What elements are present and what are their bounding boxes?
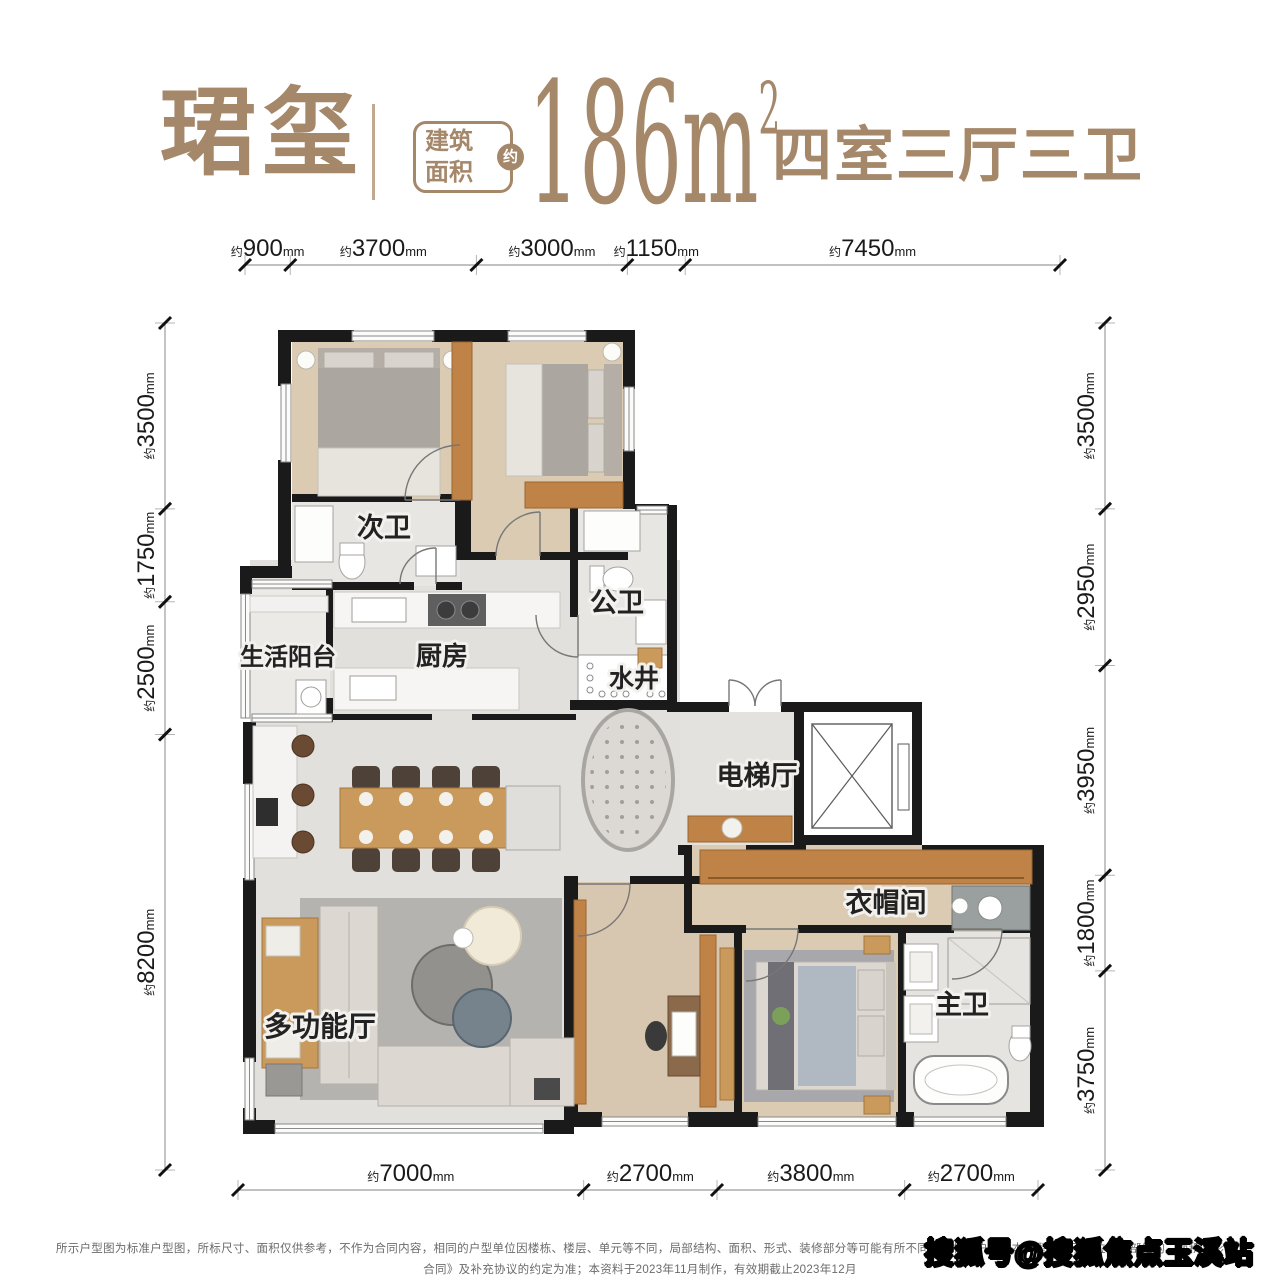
wall-segment (1006, 1112, 1044, 1127)
room-label-multifunction-hall: 多功能厅 (264, 1011, 376, 1042)
dimension-label: 约2700mm (928, 1160, 1015, 1187)
wall-segment (436, 582, 462, 590)
wall-segment (564, 876, 578, 884)
watermark: 搜狐号@搜狐焦点玉溪站 (925, 1230, 1254, 1272)
room-label-master-bath: 主卫 (935, 990, 989, 1020)
room-label-elevator-hall: 电梯厅 (717, 761, 798, 791)
dimension-chain-left: 约3500mm约1750mm约2500mm约8200mm (133, 317, 175, 1176)
wall-segment (794, 835, 922, 845)
dimension-label: 约3950mm (1073, 727, 1100, 814)
dimension-label: 约1150mm (614, 235, 699, 262)
wall-segment (540, 552, 628, 560)
wall-segment (544, 1120, 574, 1134)
wall-segment (243, 878, 256, 1062)
sofa-set (262, 898, 574, 1106)
room-label-water-well: 水井 (609, 665, 659, 693)
wall-segment (455, 498, 471, 560)
wall-segment (902, 925, 954, 933)
console-table (688, 816, 792, 842)
wall-segment (278, 342, 291, 386)
wall-segment (896, 1112, 914, 1127)
dimension-label: 约1750mm (133, 512, 160, 599)
wall-segment (330, 714, 432, 720)
dimension-chain-top: 约900mm约3700mm约3000mm约1150mm约7450mm (231, 235, 1066, 275)
room-label-secondary-bath: 次卫 (357, 513, 411, 543)
dimension-label: 约1800mm (1073, 880, 1100, 967)
wall-segment (623, 342, 635, 389)
wall-segment (678, 845, 692, 855)
wall-segment (667, 505, 677, 705)
wall-segment (623, 449, 635, 509)
dimension-chain-right: 约3500mm约2950mm约3950mm约1800mm约3750mm (1073, 317, 1115, 1176)
dimension-label: 约3000mm (508, 235, 595, 262)
dimension-label: 约7450mm (829, 235, 916, 262)
dimension-label: 约3750mm (1073, 1027, 1100, 1114)
room-label-kitchen: 厨房 (416, 641, 468, 671)
wall-segment (912, 712, 922, 845)
dimension-label: 约900mm (231, 235, 305, 262)
wall-segment (278, 460, 291, 572)
dimension-label: 约7000mm (367, 1160, 454, 1187)
wall-segment (240, 566, 252, 594)
wall-segment (1030, 845, 1044, 1127)
wall-segment (667, 702, 729, 712)
wall-segment (243, 1120, 275, 1134)
room-label-service-balcony: 生活阳台 (240, 643, 336, 671)
wall-segment (734, 932, 742, 1118)
wall-segment (584, 330, 635, 342)
elevator-shaft (804, 712, 912, 835)
dimension-chain-bottom: 约7000mm约2700mm约3800mm约2700mm (232, 1160, 1044, 1200)
wall-segment (466, 552, 496, 560)
dimension-label: 约3800mm (767, 1160, 854, 1187)
wall-segment (278, 330, 354, 342)
master-bed (744, 936, 896, 1114)
wall-segment (432, 330, 510, 342)
dimension-label: 约3500mm (133, 372, 160, 459)
bed-1 (297, 348, 461, 496)
wall-segment (688, 1112, 758, 1127)
dimension-label: 约3700mm (340, 235, 427, 262)
wall-segment (798, 925, 902, 933)
wall-segment (570, 700, 674, 710)
wall-segment (472, 714, 576, 720)
wall-segment (684, 925, 746, 933)
floor-plan: 次卫 公卫 水井 生活阳台 厨房 电梯厅 衣帽间 多功能厅 主卫 约900mm约… (0, 0, 1280, 1280)
wall-segment (794, 702, 922, 712)
wall-segment (570, 505, 578, 617)
dimension-label: 约2700mm (607, 1160, 694, 1187)
room-label-cloakroom: 衣帽间 (846, 887, 927, 918)
dimension-label: 约8200mm (133, 909, 160, 996)
dimension-label: 约2500mm (133, 625, 160, 712)
foyer-rug (583, 710, 673, 850)
dimension-label: 约3500mm (1073, 372, 1100, 459)
dimension-label: 约2950mm (1073, 544, 1100, 631)
bar-counter (253, 726, 314, 858)
wall-segment (684, 855, 692, 927)
room-label-public-bath: 公卫 (590, 588, 644, 618)
wardrobe-bedroom1 (452, 342, 472, 500)
